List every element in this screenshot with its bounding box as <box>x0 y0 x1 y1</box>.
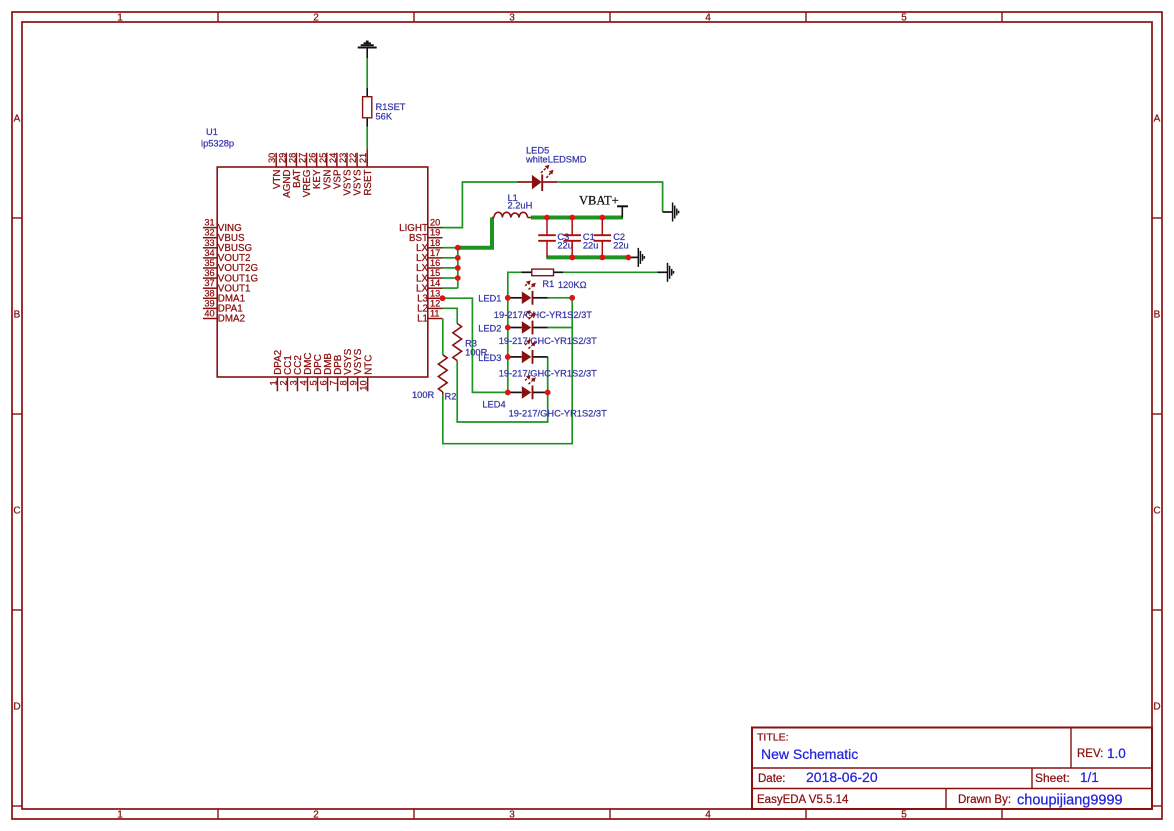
svg-text:2.2uH: 2.2uH <box>508 201 533 211</box>
svg-text:18: 18 <box>430 238 440 248</box>
svg-text:19-217/GHC-YR1S2/3T: 19-217/GHC-YR1S2/3T <box>499 368 597 378</box>
svg-text:4: 4 <box>298 380 308 385</box>
svg-text:1: 1 <box>268 380 278 385</box>
svg-text:27: 27 <box>298 153 308 163</box>
svg-text:37: 37 <box>204 278 214 288</box>
svg-text:30: 30 <box>267 153 277 163</box>
svg-text:38: 38 <box>204 288 214 298</box>
svg-text:LED2: LED2 <box>478 324 501 334</box>
svg-text:R1: R1 <box>542 279 554 289</box>
svg-text:1: 1 <box>117 13 123 24</box>
svg-text:12: 12 <box>430 298 440 308</box>
svg-text:B: B <box>1154 310 1161 321</box>
svg-text:4: 4 <box>705 13 711 24</box>
svg-text:choupijiang9999: choupijiang9999 <box>1017 793 1123 809</box>
svg-text:A: A <box>1154 114 1161 125</box>
svg-text:1.0: 1.0 <box>1107 746 1126 761</box>
svg-text:1: 1 <box>117 810 123 821</box>
svg-text:L1: L1 <box>417 314 428 325</box>
svg-text:9: 9 <box>349 380 359 385</box>
svg-text:23: 23 <box>338 153 348 163</box>
svg-text:C: C <box>13 506 20 517</box>
svg-text:D: D <box>1153 702 1160 713</box>
svg-text:RSET: RSET <box>363 169 374 195</box>
svg-text:Sheet:: Sheet: <box>1035 771 1070 785</box>
svg-text:3: 3 <box>509 13 515 24</box>
svg-text:ip5328p: ip5328p <box>201 139 234 149</box>
svg-text:120KΩ: 120KΩ <box>558 280 587 290</box>
svg-text:22: 22 <box>348 153 358 163</box>
svg-text:5: 5 <box>901 810 907 821</box>
svg-text:29: 29 <box>277 153 287 163</box>
svg-text:3: 3 <box>509 810 515 821</box>
svg-text:36: 36 <box>204 268 214 278</box>
svg-text:31: 31 <box>204 218 214 228</box>
svg-text:6: 6 <box>319 380 329 385</box>
svg-text:VBAT+: VBAT+ <box>579 193 619 207</box>
svg-text:32: 32 <box>204 228 214 238</box>
svg-text:R1SET: R1SET <box>376 102 406 112</box>
svg-text:26: 26 <box>308 153 318 163</box>
svg-text:NTC: NTC <box>363 355 374 375</box>
svg-text:R2: R2 <box>445 392 457 402</box>
svg-text:EasyEDA V5.5.14: EasyEDA V5.5.14 <box>757 794 849 806</box>
svg-text:U1: U1 <box>206 127 218 137</box>
svg-text:14: 14 <box>430 278 440 288</box>
svg-text:DMA2: DMA2 <box>218 314 245 325</box>
svg-text:LED4: LED4 <box>482 399 505 409</box>
svg-text:35: 35 <box>204 258 214 268</box>
svg-text:TITLE:: TITLE: <box>757 732 789 744</box>
svg-text:5: 5 <box>901 13 907 24</box>
svg-text:16: 16 <box>430 258 440 268</box>
svg-text:4: 4 <box>705 810 711 821</box>
svg-text:19: 19 <box>430 228 440 238</box>
svg-text:Drawn By:: Drawn By: <box>958 794 1011 806</box>
svg-text:1/1: 1/1 <box>1080 770 1099 785</box>
svg-text:REV:: REV: <box>1077 748 1103 760</box>
svg-text:56K: 56K <box>376 112 393 122</box>
svg-text:24: 24 <box>328 153 338 163</box>
svg-text:19-217/GHC-YR1S2/3T: 19-217/GHC-YR1S2/3T <box>494 310 592 320</box>
svg-text:New Schematic: New Schematic <box>761 746 858 762</box>
svg-text:100R: 100R <box>412 390 435 400</box>
svg-text:19-217/GHC-YR1S2/3T: 19-217/GHC-YR1S2/3T <box>509 409 607 419</box>
svg-text:34: 34 <box>204 248 214 258</box>
svg-text:100R: 100R <box>465 348 488 358</box>
svg-text:19-217/GHC-YR1S2/3T: 19-217/GHC-YR1S2/3T <box>499 336 597 346</box>
svg-text:15: 15 <box>430 268 440 278</box>
svg-text:3: 3 <box>288 380 298 385</box>
svg-text:28: 28 <box>287 153 297 163</box>
svg-text:40: 40 <box>204 309 214 319</box>
svg-text:B: B <box>14 310 21 321</box>
svg-text:A: A <box>14 114 21 125</box>
svg-text:2: 2 <box>278 380 288 385</box>
svg-text:17: 17 <box>430 248 440 258</box>
svg-text:13: 13 <box>430 288 440 298</box>
svg-text:whiteLEDSMD: whiteLEDSMD <box>525 154 587 164</box>
svg-text:2: 2 <box>313 810 319 821</box>
svg-text:5: 5 <box>309 380 319 385</box>
svg-text:25: 25 <box>318 153 328 163</box>
svg-text:22u: 22u <box>583 240 599 250</box>
svg-text:7: 7 <box>329 380 339 385</box>
svg-text:LED1: LED1 <box>478 293 501 303</box>
svg-text:10: 10 <box>359 380 369 390</box>
svg-text:2018-06-20: 2018-06-20 <box>806 769 878 785</box>
svg-text:D: D <box>13 702 20 713</box>
svg-text:20: 20 <box>430 218 440 228</box>
svg-text:2: 2 <box>313 13 319 24</box>
svg-text:8: 8 <box>339 380 349 385</box>
svg-text:39: 39 <box>204 298 214 308</box>
svg-text:22u: 22u <box>557 240 573 250</box>
svg-text:11: 11 <box>430 309 440 319</box>
svg-text:Date:: Date: <box>758 773 786 785</box>
svg-text:C: C <box>1153 506 1160 517</box>
svg-text:22u: 22u <box>613 240 629 250</box>
svg-text:33: 33 <box>204 238 214 248</box>
